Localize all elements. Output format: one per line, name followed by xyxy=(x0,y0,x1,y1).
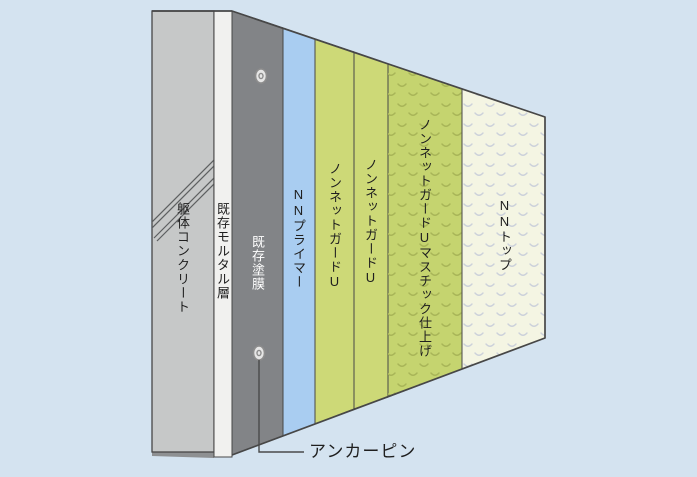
label-concrete: 躯体コンクリート xyxy=(176,202,189,314)
block-bottom-shadow xyxy=(152,452,214,458)
label-mastic: ノンネットガードUマスチック仕上げ xyxy=(418,118,431,358)
diagram-canvas xyxy=(0,0,697,477)
label-guard-u-1: ノンネットガードU xyxy=(328,162,341,290)
label-guard-u-2: ノンネットガードU xyxy=(364,158,377,286)
anchor-pin-top-icon xyxy=(256,69,267,83)
label-coating: 既存塗膜 xyxy=(251,235,264,291)
wall-layers-diagram: 躯体コンクリート 既存モルタル層 既存塗膜 NNプライマー ノンネットガードU … xyxy=(0,0,697,477)
label-primer: NNプライマー xyxy=(292,187,305,289)
label-nntop: NNトップ xyxy=(498,198,511,272)
anchor-pin-label: アンカーピン xyxy=(309,443,416,462)
anchor-pin-bottom-icon xyxy=(254,346,265,360)
label-mortar: 既存モルタル層 xyxy=(216,202,229,300)
